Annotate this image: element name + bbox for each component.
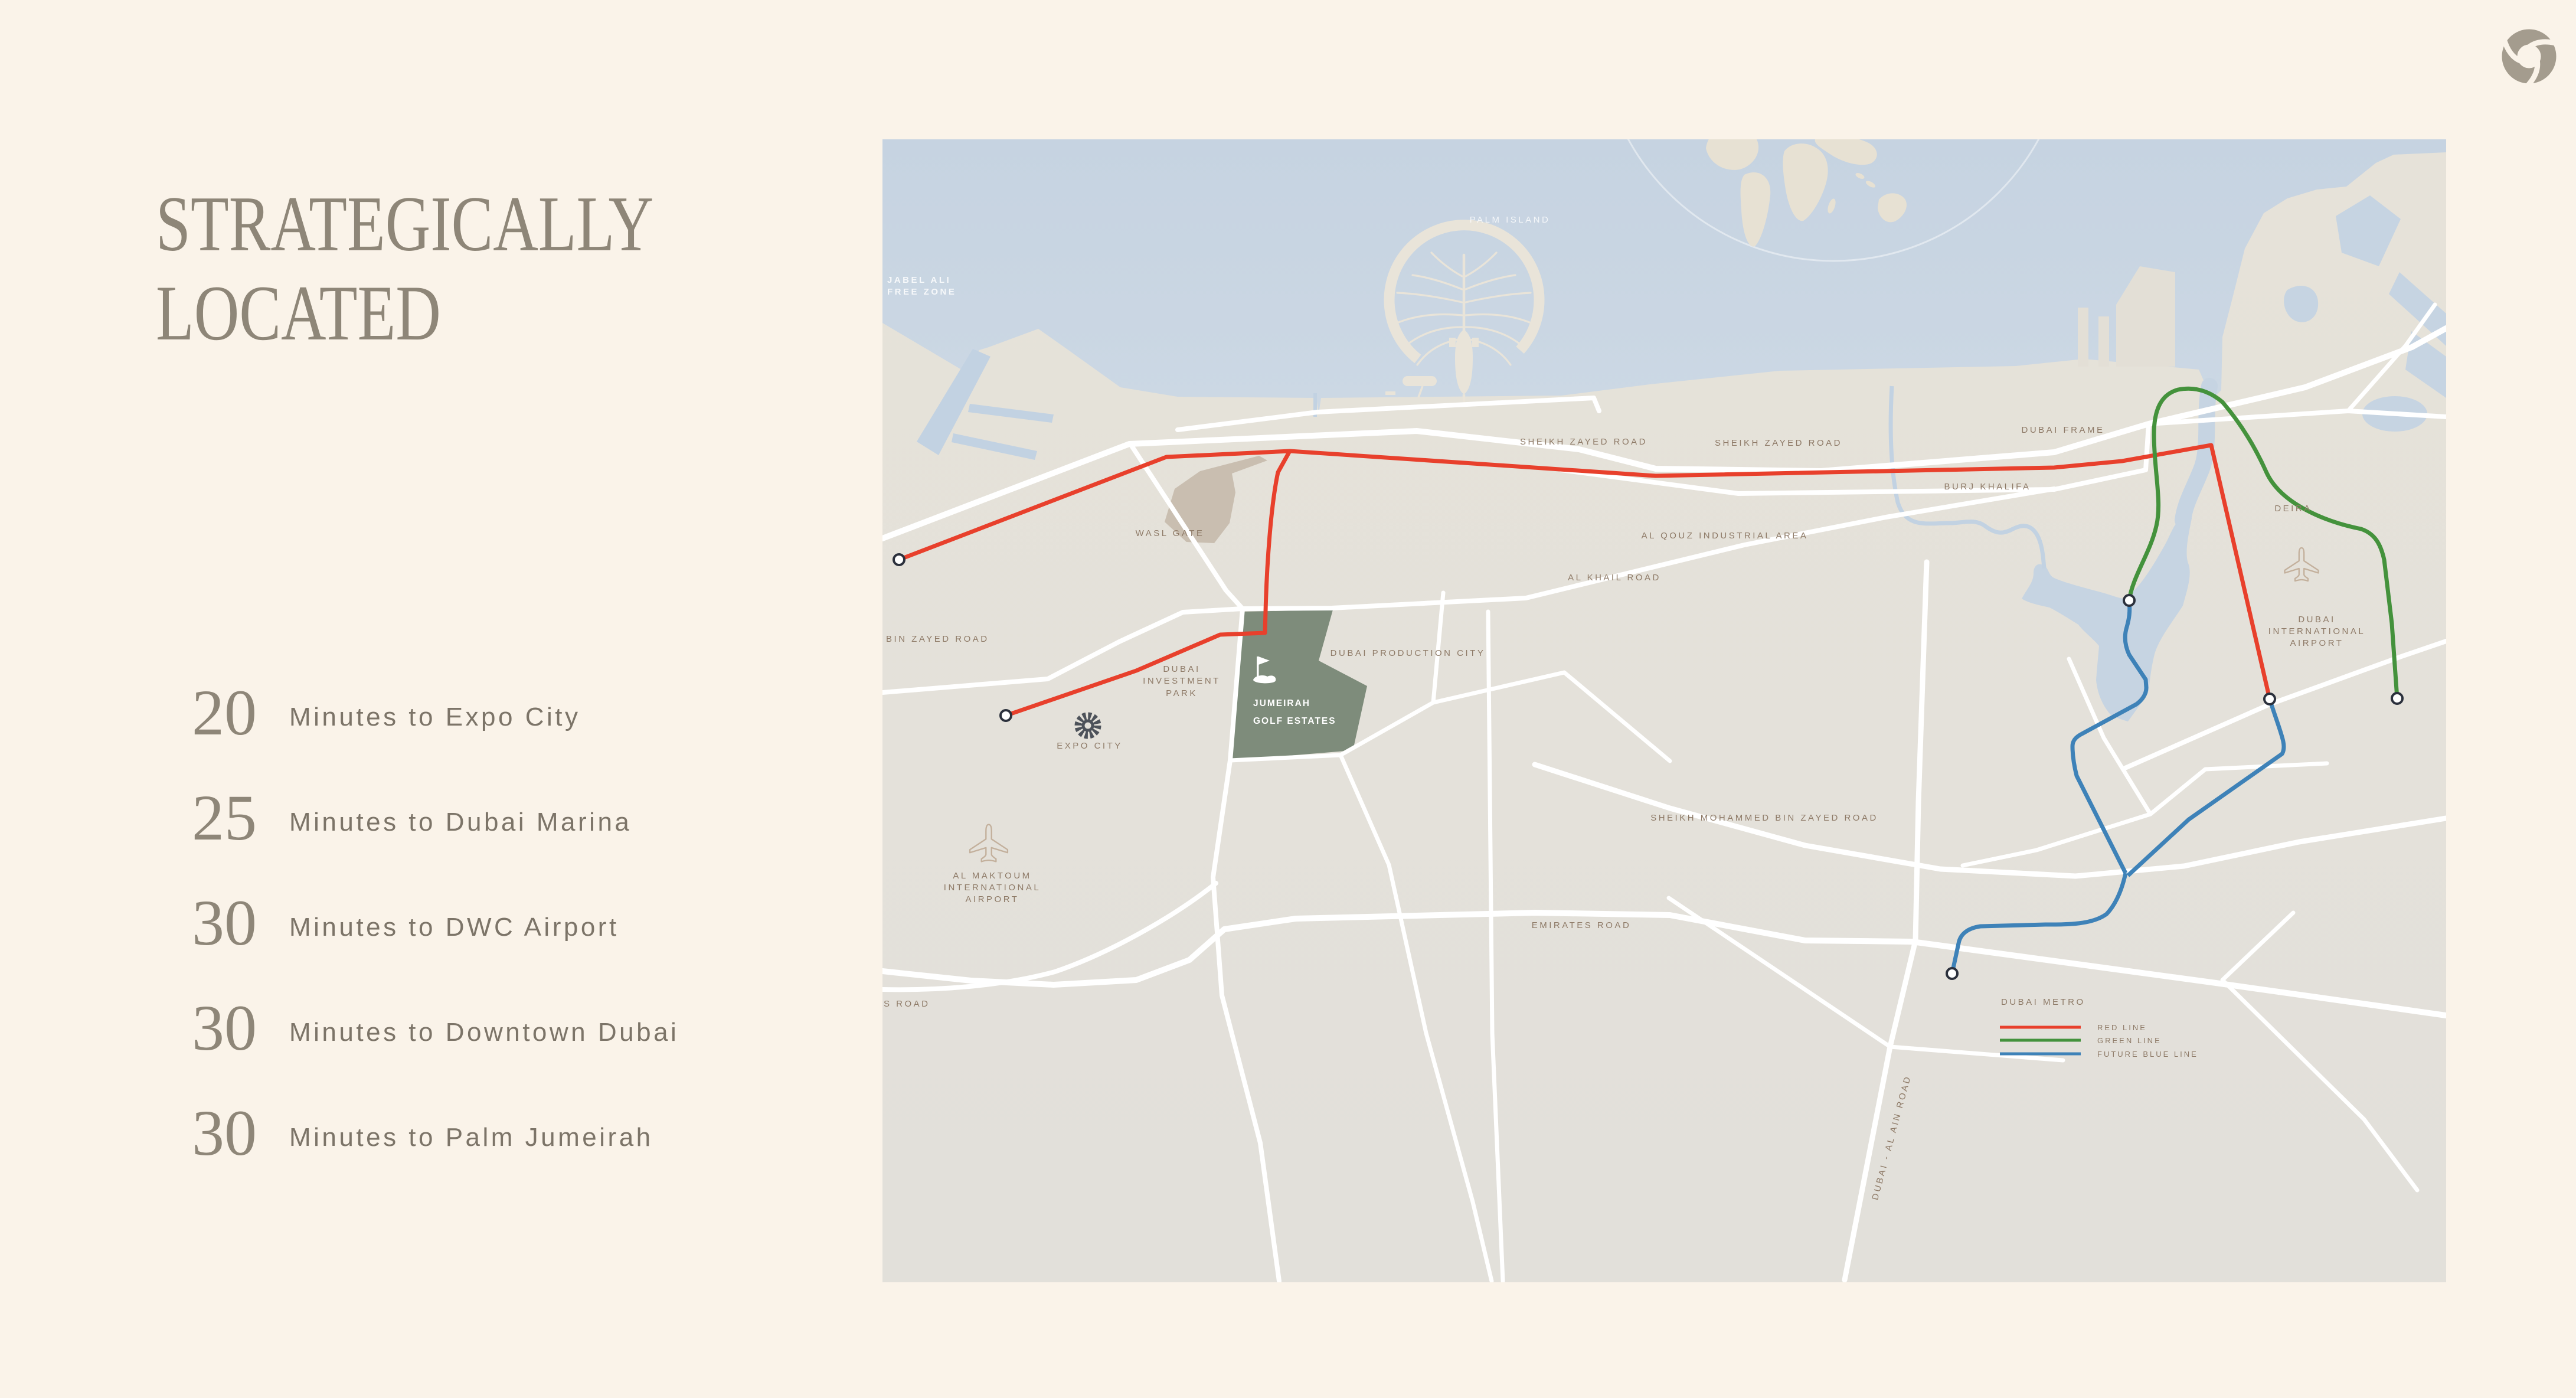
svg-text:JUMEIRAH: JUMEIRAH bbox=[1253, 698, 1310, 708]
svg-text:AIRPORT: AIRPORT bbox=[2290, 638, 2344, 648]
svg-text:DUBAI: DUBAI bbox=[2298, 615, 2335, 625]
svg-text:RED LINE: RED LINE bbox=[2097, 1023, 2147, 1032]
svg-text:SHEIKH ZAYED ROAD: SHEIKH ZAYED ROAD bbox=[1520, 437, 1647, 447]
svg-text:JABEL ALI: JABEL ALI bbox=[887, 275, 951, 285]
svg-text:BURJ KHALIFA: BURJ KHALIFA bbox=[1944, 482, 2031, 492]
svg-text:PALM ISLAND: PALM ISLAND bbox=[1470, 215, 1551, 225]
svg-text:AL QOUZ INDUSTRIAL AREA: AL QOUZ INDUSTRIAL AREA bbox=[1642, 531, 1809, 541]
svg-text:DUBAI METRO: DUBAI METRO bbox=[2001, 997, 2085, 1007]
svg-text:DUBAI: DUBAI bbox=[1163, 664, 1200, 674]
svg-text:GREEN LINE: GREEN LINE bbox=[2097, 1036, 2162, 1045]
svg-text:AL KHAIL ROAD: AL KHAIL ROAD bbox=[1568, 573, 1661, 583]
svg-text:GOLF ESTATES: GOLF ESTATES bbox=[1253, 716, 1336, 726]
svg-text:DUBAI PRODUCTION CITY: DUBAI PRODUCTION CITY bbox=[1331, 648, 1486, 658]
svg-text:WASL GATE: WASL GATE bbox=[1136, 528, 1205, 538]
svg-text:SHEIKH ZAYED ROAD: SHEIKH ZAYED ROAD bbox=[1715, 438, 1842, 448]
svg-text:FUTURE BLUE LINE: FUTURE BLUE LINE bbox=[2097, 1050, 2198, 1059]
svg-text:AIRPORT: AIRPORT bbox=[966, 894, 1019, 904]
svg-text:AL MAKTOUM: AL MAKTOUM bbox=[953, 871, 1031, 881]
svg-text:BIN ZAYED ROAD: BIN ZAYED ROAD bbox=[886, 634, 989, 644]
svg-text:INVESTMENT: INVESTMENT bbox=[1143, 676, 1221, 686]
svg-text:EMIRATES ROAD: EMIRATES ROAD bbox=[1532, 920, 1632, 930]
svg-text:SHEIKH MOHAMMED BIN ZAYED ROAD: SHEIKH MOHAMMED BIN ZAYED ROAD bbox=[1650, 813, 1878, 823]
svg-text:DEIRA: DEIRA bbox=[2274, 504, 2312, 514]
svg-text:DUBAI FRAME: DUBAI FRAME bbox=[2021, 425, 2104, 435]
svg-text:PARK: PARK bbox=[1166, 688, 1198, 698]
svg-text:FREE ZONE: FREE ZONE bbox=[887, 287, 956, 297]
svg-text:EXPO CITY: EXPO CITY bbox=[1057, 741, 1123, 751]
svg-text:INTERNATIONAL: INTERNATIONAL bbox=[2268, 626, 2365, 636]
svg-text:INTERNATIONAL: INTERNATIONAL bbox=[944, 883, 1041, 893]
svg-text:S ROAD: S ROAD bbox=[884, 999, 930, 1009]
